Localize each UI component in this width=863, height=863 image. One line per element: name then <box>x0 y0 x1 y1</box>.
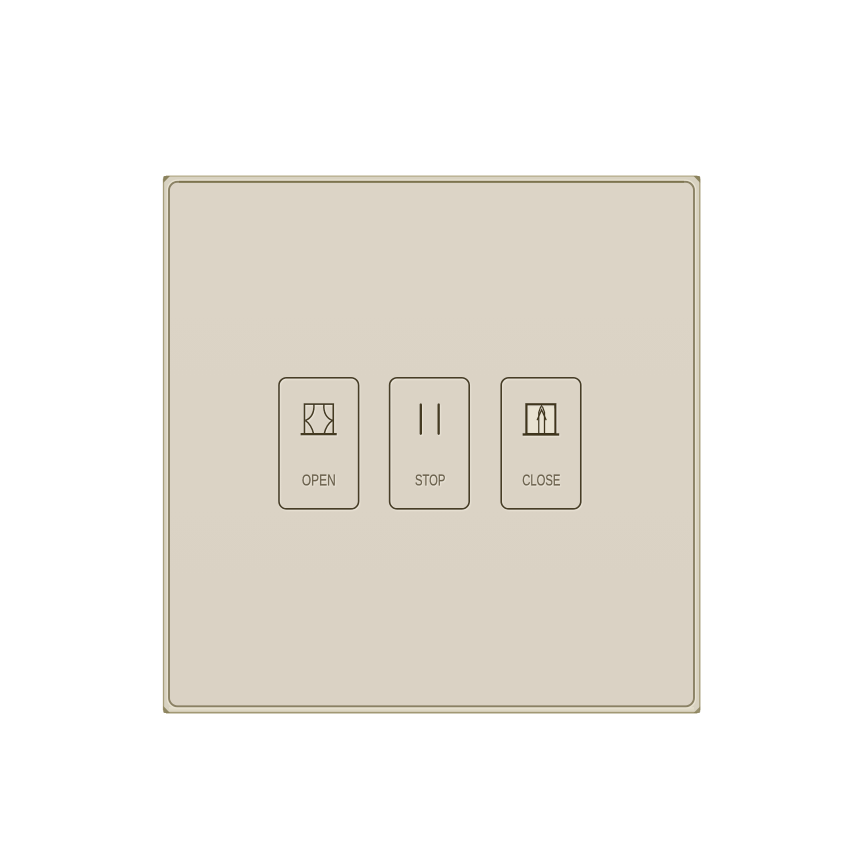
svg-text:OPEN: OPEN <box>302 473 336 490</box>
svg-text:CLOSE: CLOSE <box>522 473 560 490</box>
svg-text:STOP: STOP <box>415 473 446 490</box>
